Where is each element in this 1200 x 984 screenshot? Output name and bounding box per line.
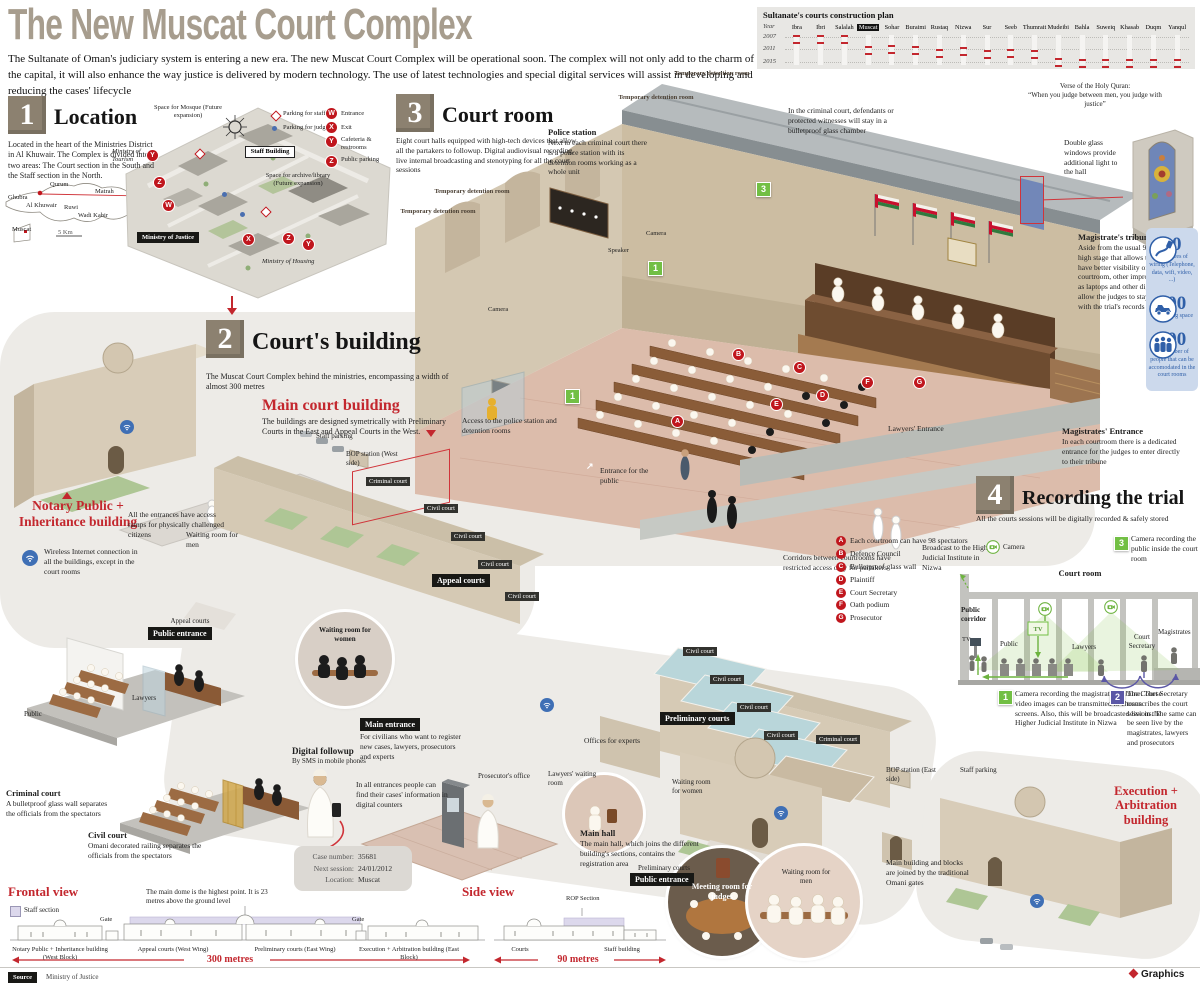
next-session-row: Next session:24/01/2012 bbox=[300, 863, 406, 875]
cable-icon bbox=[1148, 235, 1178, 265]
waiting-women-inset-label: Waiting room for women bbox=[312, 626, 378, 644]
temp-detention-3: Temporary detention room bbox=[432, 188, 512, 196]
timeline-city-label: Bahla bbox=[1070, 23, 1094, 33]
timeline-mark bbox=[984, 50, 991, 59]
timeline-city-label: Suweiq bbox=[1094, 23, 1118, 33]
timeline-track bbox=[1032, 35, 1037, 65]
timeline-city-label: Seeb bbox=[999, 23, 1023, 33]
case-info-box: Case number:35681 Next session:24/01/201… bbox=[294, 846, 412, 891]
temp-detention-4: Temporary detention room bbox=[398, 208, 478, 216]
wifi-badge-3 bbox=[774, 806, 788, 820]
courts-label: Courts bbox=[498, 946, 542, 954]
main-entrance-tag: Main entrance bbox=[360, 718, 420, 731]
prosecutors-office-label: Prosecutor's office bbox=[478, 772, 542, 781]
timeline-mark bbox=[817, 35, 824, 44]
wifi-badge-4 bbox=[1030, 894, 1044, 908]
stat-capacity: 800 the number of people that can be acc… bbox=[1148, 330, 1196, 380]
civil-court-tag-2: Civil court bbox=[451, 532, 485, 541]
map-marker-w1: W bbox=[163, 200, 174, 211]
wifi-badge-1 bbox=[120, 420, 134, 434]
map-marker-y1: Y bbox=[147, 150, 158, 161]
criminal-court-tag-west: Criminal court bbox=[366, 477, 410, 486]
section1-heading: Location bbox=[54, 106, 137, 128]
timeline-city-label: Sur bbox=[975, 23, 999, 33]
wifi-icon bbox=[22, 550, 38, 566]
courtroom-marker-d: D bbox=[817, 390, 828, 401]
next-session-key: Next session: bbox=[300, 863, 358, 875]
timeline-city-label: Thumrait bbox=[1023, 23, 1047, 33]
brand-name: Graphics bbox=[1141, 969, 1184, 980]
timeline-city-muscat: Muscat bbox=[856, 23, 880, 67]
lawyers-label: Lawyers bbox=[132, 694, 156, 703]
block-label-0: Notary Public + Inheritance building (We… bbox=[4, 946, 116, 963]
dimension-90m-label: 90 metres bbox=[548, 953, 608, 966]
timeline-track bbox=[961, 35, 966, 65]
timeline-city-label: Sohar bbox=[880, 23, 904, 33]
note2-text: The Court Secretary transcribes the cour… bbox=[1127, 689, 1197, 748]
chart-title: Sultanate's courts construction plan bbox=[763, 11, 1189, 20]
legend-marker-y: Y bbox=[326, 136, 337, 147]
civil-court-tag-e1: Civil court bbox=[683, 647, 717, 656]
key-letter-badge: C bbox=[836, 562, 846, 572]
appeal-courts-tag: Appeal courts bbox=[432, 574, 490, 587]
map-bluedot-1 bbox=[240, 212, 245, 217]
timeline-city-seeb: Seeb bbox=[999, 23, 1023, 67]
magistrates-entrance-body: In each courtroom there is a dedicated e… bbox=[1062, 437, 1182, 466]
main-hall-title: Main hall bbox=[580, 828, 615, 839]
broadcast-note: Broadcast to the Higher Judicial Institu… bbox=[922, 543, 994, 572]
staff-parking-west: Staff parking bbox=[316, 432, 353, 441]
map-archive-label: Space for archive/library (Future expans… bbox=[258, 172, 338, 189]
court-demo-scenes bbox=[15, 628, 315, 873]
timeline-city-suweiq: Suweiq bbox=[1094, 23, 1118, 67]
public-entrance-arrow-icon bbox=[586, 456, 594, 474]
timeline-mark bbox=[960, 47, 967, 56]
key-letter-badge: G bbox=[836, 613, 846, 623]
section1-number: 1 bbox=[8, 96, 46, 134]
double-glass-note2: Double glass windows provide additional … bbox=[1064, 138, 1126, 177]
key-letter-badge: B bbox=[836, 549, 846, 559]
main-entrance-body: For civilians who want to register new c… bbox=[360, 732, 468, 761]
courtroom-marker-b: B bbox=[733, 349, 744, 360]
section3-heading: Court room bbox=[442, 104, 553, 126]
map-ministry-housing: Ministry of Housing bbox=[262, 258, 320, 266]
magistrates-entrance-title: Magistrates' Entrance bbox=[1062, 426, 1192, 437]
callout-1-badge-b: 1 bbox=[565, 389, 580, 404]
sketch-city-ruwi: Ruwi bbox=[64, 204, 78, 212]
map-staff-building: Staff Building bbox=[245, 146, 295, 158]
note3-badge: 3 bbox=[1114, 536, 1129, 551]
timeline-track bbox=[985, 35, 990, 65]
timeline-city-label: Khasab bbox=[1118, 23, 1142, 33]
section3-number: 3 bbox=[396, 94, 434, 132]
section4-body: All the courts sessions will be digitall… bbox=[976, 514, 1198, 524]
notary-building-title: Notary Public + Inheritance building bbox=[14, 498, 142, 529]
section2-pointer-line bbox=[231, 296, 233, 308]
section2-number: 2 bbox=[206, 320, 244, 358]
sketch-scale: 5 Km bbox=[58, 229, 73, 237]
preliminary-courts-tag2: Preliminary courts bbox=[660, 712, 735, 725]
timeline-city-label: Buraimi bbox=[904, 23, 928, 33]
glass-chamber-note: In the criminal court, defendants or pro… bbox=[788, 106, 910, 135]
callout-1-badge-a: 1 bbox=[648, 261, 663, 276]
section4-court-room-label: Court room bbox=[1040, 568, 1120, 579]
timeline-mark bbox=[793, 35, 800, 44]
timeline-track bbox=[1080, 35, 1085, 65]
brand-logo: Graphics bbox=[1130, 969, 1184, 981]
timeline-city-label: Mudeibi bbox=[1046, 23, 1070, 33]
timeline-city-label: Duqm bbox=[1141, 23, 1165, 33]
year-tick-2007: 2007 bbox=[763, 33, 776, 40]
map-marker-y2: Y bbox=[303, 239, 314, 250]
legend-public-parking: Public parking bbox=[341, 156, 389, 164]
timeline-mark bbox=[936, 49, 943, 58]
timeline-mark bbox=[865, 46, 872, 55]
camera-icon-legend bbox=[986, 540, 1000, 554]
map-marker-x1: X bbox=[243, 234, 254, 245]
legend-parking-staff: Parking for staff bbox=[283, 110, 325, 118]
brand-diamond-icon bbox=[1129, 969, 1139, 979]
year-tick-2015: 2015 bbox=[763, 58, 776, 65]
staff-parking-east: Staff parking bbox=[960, 766, 997, 775]
digital-followup-sub: By SMS in mobile phones bbox=[292, 757, 366, 766]
timeline-mark bbox=[1174, 59, 1181, 68]
civil-court-tag-3: Civil court bbox=[478, 560, 512, 569]
timeline-city-label: Yanqul bbox=[1165, 23, 1189, 33]
courtroom-marker-e: E bbox=[771, 399, 782, 410]
location-value: Muscat bbox=[358, 874, 380, 886]
key-item-F: FOath podium bbox=[836, 600, 968, 609]
timeline-track bbox=[1127, 35, 1132, 65]
civil-demo-body: Omani decorated railing separates the of… bbox=[88, 841, 216, 861]
legend-marker-x: X bbox=[326, 122, 337, 133]
timeline-city-sohar: Sohar bbox=[880, 23, 904, 67]
block-label-3: Execution + Arbitration building (East B… bbox=[354, 946, 464, 963]
timeline-mark bbox=[1102, 59, 1109, 68]
timeline-mark bbox=[1007, 49, 1014, 58]
timeline-mark bbox=[841, 35, 848, 44]
criminal-demo-title: Criminal court bbox=[6, 788, 61, 799]
timeline-track bbox=[1151, 35, 1156, 65]
speaker-label: Speaker bbox=[608, 247, 629, 255]
courtroom-marker-g: G bbox=[914, 377, 925, 388]
public-corridor-label: Public corridor bbox=[961, 606, 1005, 624]
next-session-value: 24/01/2012 bbox=[358, 863, 392, 875]
wireless-note: Wireless Internet connection in all the … bbox=[44, 547, 144, 576]
source-tag: Source bbox=[8, 972, 37, 983]
courtroom-marker-a: A bbox=[672, 416, 683, 427]
frontal-elevation bbox=[10, 904, 485, 946]
main-court-title: Main court building bbox=[262, 396, 400, 417]
camera-legend-label: Camera bbox=[1003, 543, 1025, 552]
waiting-room-men-inset bbox=[748, 846, 860, 958]
sketch-city-alkhuwair: Al Khuwair bbox=[26, 202, 57, 210]
infographic-canvas: The New Muscat Court Complex The Sultana… bbox=[0, 0, 1200, 984]
timeline-city-salalah: Salalah bbox=[833, 23, 857, 67]
waiting-women-east-label: Waiting room for women bbox=[672, 778, 718, 796]
temp-detention-1: Temporary detention room bbox=[672, 70, 752, 78]
key-letter-badge: E bbox=[836, 588, 846, 598]
prelim-entrance-label: Preliminary courts bbox=[626, 864, 702, 873]
timeline-city-label: Salalah bbox=[833, 23, 857, 33]
key-item-E: ECourt Secretary bbox=[836, 588, 968, 597]
case-number-key: Case number: bbox=[300, 851, 358, 863]
stat-wiring: 80 kilometres of wiring (Telephone, data… bbox=[1148, 235, 1196, 285]
dimension-300m-label: 300 metres bbox=[190, 953, 270, 966]
key-item-D: DPlaintiff bbox=[836, 575, 968, 584]
map-marker-z2: Z bbox=[283, 233, 294, 244]
key-letter-badge: F bbox=[836, 600, 846, 610]
civil-demo-title: Civil court bbox=[88, 830, 127, 841]
staff-section-swatch bbox=[10, 906, 21, 917]
section2-body: The Muscat Court Complex behind the mini… bbox=[206, 372, 464, 393]
temp-detention-2: Temporary detention room bbox=[616, 94, 696, 102]
stained-glass-detail bbox=[1125, 108, 1200, 248]
map-ministry-justice: Ministry of Justice bbox=[137, 232, 199, 243]
legend-marker-z: Z bbox=[326, 156, 337, 167]
dome-note: The main dome is the highest point. It i… bbox=[146, 888, 274, 906]
map-staff-building-label: Staff Building bbox=[251, 148, 290, 155]
construction-plan-chart: Sultanate's courts construction plan Yea… bbox=[757, 7, 1195, 69]
appeal-public-entrance-tag: Public entrance bbox=[148, 627, 212, 640]
criminal-court-tag-east: Criminal court bbox=[816, 735, 860, 744]
civil-court-tag-e2: Civil court bbox=[710, 675, 744, 684]
note2-badge2: 2 bbox=[1110, 690, 1125, 705]
timeline-city-yanqul: Yanqul bbox=[1165, 23, 1189, 67]
tv-green-label: TV bbox=[1028, 626, 1048, 634]
meeting-room-label: Meeting room for judges bbox=[686, 882, 758, 903]
timeline-track bbox=[889, 35, 894, 65]
timeline-track bbox=[1103, 35, 1108, 65]
legend-entrance: Entrance bbox=[341, 110, 364, 118]
case-number-value: 35681 bbox=[358, 851, 377, 863]
camera-label-2: Camera bbox=[488, 306, 508, 314]
case-number-row: Case number:35681 bbox=[300, 851, 406, 863]
timeline-city-label: Rustaq bbox=[928, 23, 952, 33]
timeline-mark bbox=[1031, 50, 1038, 59]
timeline-city-nizwa: Nizwa bbox=[951, 23, 975, 67]
tribune-title: Magistrate's tribune bbox=[1078, 232, 1152, 243]
stat-parking: 400 car parking space bbox=[1148, 294, 1196, 321]
timeline-track bbox=[913, 35, 918, 65]
page-title: The New Muscat Court Complex bbox=[8, 2, 472, 48]
sketch-city-wadikabir: Wadi Kabir bbox=[78, 212, 110, 220]
staff-section-label: Staff section bbox=[24, 906, 59, 915]
offices-experts-label: Offices for experts bbox=[584, 736, 642, 746]
side-view-title: Side view bbox=[462, 884, 514, 901]
police-station-body: Next to each criminal court there is a p… bbox=[548, 138, 652, 177]
stats-panel: 80 kilometres of wiring (Telephone, data… bbox=[1146, 228, 1198, 391]
timeline-city-label: Muscat bbox=[856, 23, 880, 33]
timeline-city-label: Nizwa bbox=[951, 23, 975, 33]
year-axis-label: Year bbox=[763, 23, 775, 30]
timeline-mark bbox=[1079, 59, 1086, 68]
timeline-city-rustaq: Rustaq bbox=[928, 23, 952, 67]
window-callout-rect bbox=[1020, 176, 1044, 224]
execution-building-title: Execution + Arbitration building bbox=[1096, 784, 1196, 827]
criminal-demo-body: A bulletproof glass wall separates the o… bbox=[6, 799, 118, 819]
courtroom-marker-f: F bbox=[862, 377, 873, 388]
entrance-public-label: Entrance for the public bbox=[600, 466, 664, 486]
lawyers-waiting-label: Lawyers' waiting room bbox=[548, 770, 600, 788]
waiting-men-west: Waiting room for men bbox=[186, 530, 238, 550]
people-icon bbox=[1148, 330, 1178, 360]
lawyers-entrance-label: Lawyers' Entrance bbox=[888, 424, 978, 434]
counters-note: In all entrances people can find their c… bbox=[356, 780, 448, 809]
west-wing-buildings bbox=[0, 318, 545, 653]
waiting-men-east-label: Waiting room for men bbox=[778, 868, 834, 886]
timeline-track bbox=[1008, 35, 1013, 65]
timeline-city-bahla: Bahla bbox=[1070, 23, 1094, 67]
sketch-city-muscat: Muscat bbox=[12, 226, 31, 234]
main-court-body: The buildings are designed symetrically … bbox=[262, 417, 452, 438]
location-key: Location: bbox=[300, 874, 358, 886]
section2-heading: Court's building bbox=[252, 330, 421, 354]
public-label: Public bbox=[24, 710, 42, 719]
sketch-city-ghubra: Ghubra bbox=[8, 194, 28, 202]
car-icon bbox=[1148, 294, 1178, 324]
section2-pointer-arrow-icon bbox=[227, 308, 237, 320]
civil-court-tag-1: Civil court bbox=[424, 504, 458, 513]
section4-heading: Recording the trial bbox=[1022, 488, 1184, 508]
camera-label-1: Camera bbox=[646, 230, 666, 238]
timeline-city-thumrait: Thumrait bbox=[1023, 23, 1047, 67]
key-letter-badge: A bbox=[836, 536, 846, 546]
district-map bbox=[108, 96, 398, 306]
timeline-track bbox=[818, 35, 823, 65]
timeline-track bbox=[937, 35, 942, 65]
bop-west-label: BOP station (West side) bbox=[346, 450, 404, 468]
map-mosque-label: Space for Mosque (Future expansion) bbox=[146, 104, 230, 121]
timeline-city-duqm: Duqm bbox=[1141, 23, 1165, 67]
timeline-mark bbox=[1126, 59, 1133, 68]
sketch-city-qurum: Qurum bbox=[50, 181, 68, 189]
timeline-city-label: Ibra bbox=[785, 23, 809, 33]
timeline-columns: IbraIbriSalalahMuscatSoharBuraimiRustaqN… bbox=[785, 23, 1189, 67]
wifi-badge-2 bbox=[540, 698, 554, 712]
courtroom-marker-c: C bbox=[794, 362, 805, 373]
civil-court-tag-4: Civil court bbox=[505, 592, 539, 601]
digital-followup-title: Digital followup bbox=[292, 746, 354, 758]
timeline-city-ibri: Ibri bbox=[809, 23, 833, 67]
timeline-city-khasab: Khasab bbox=[1118, 23, 1142, 67]
key-item-G: GProsecutor bbox=[836, 613, 968, 622]
callout-3-badge: 3 bbox=[756, 182, 771, 197]
note1-badge: 1 bbox=[998, 690, 1013, 705]
timeline-city-label: Ibri bbox=[809, 23, 833, 33]
timeline-mark bbox=[888, 45, 895, 54]
timeline-track bbox=[794, 35, 799, 65]
dot-icon bbox=[272, 126, 277, 131]
intro-text: The Sultanate of Oman's judiciary system… bbox=[8, 52, 760, 100]
section4-number: 4 bbox=[976, 476, 1014, 514]
civil-court-tag-e4: Civil court bbox=[764, 731, 798, 740]
timeline-mark bbox=[1150, 59, 1157, 68]
legend-parking-judges: Parking for judges bbox=[283, 124, 331, 132]
location-row: Location:Muscat bbox=[300, 874, 406, 886]
sketch-city-matrah: Matrah bbox=[95, 188, 114, 196]
quran-verse-quote: “When you judge between men, you judge w… bbox=[1022, 91, 1168, 109]
appeal-courts-entrance-label: Appeal courts bbox=[158, 617, 222, 626]
timeline-city-buraimi: Buraimi bbox=[904, 23, 928, 67]
year-axis: Year 2007 2011 2015 bbox=[763, 23, 785, 67]
legend-cafeteria: Cafeteria & restrooms bbox=[341, 136, 389, 153]
access-police-note: Access to the police station and detenti… bbox=[462, 416, 558, 436]
timeline-track bbox=[842, 35, 847, 65]
civil-court-tag-e3: Civil court bbox=[737, 703, 771, 712]
gate-label-2: Gate bbox=[352, 916, 364, 924]
timeline-track bbox=[1056, 35, 1061, 65]
gate-label-1: Gate bbox=[100, 916, 112, 924]
year-tick-2011: 2011 bbox=[763, 45, 776, 52]
timeline-city-mudeibi: Mudeibi bbox=[1046, 23, 1070, 67]
source-value: Ministry of Justice bbox=[46, 973, 99, 982]
omani-gates-note: Main building and blocks are joined by t… bbox=[886, 858, 970, 887]
frontal-view-title: Frontal view bbox=[8, 884, 78, 901]
timeline-mark bbox=[912, 46, 919, 55]
timeline-city-sur: Sur bbox=[975, 23, 999, 67]
key-letter-badge: D bbox=[836, 575, 846, 585]
legend-exit: Exit bbox=[341, 124, 352, 132]
map-marker-z1: Z bbox=[154, 177, 165, 188]
lawyers-role-label: Lawyers bbox=[1072, 643, 1096, 652]
side-elevation bbox=[494, 904, 666, 946]
tv-left-label: TV bbox=[962, 636, 971, 644]
timeline-track bbox=[1175, 35, 1180, 65]
rop-section-label: ROP Section bbox=[566, 895, 600, 903]
magistrates-role-label: Magistrates bbox=[1158, 628, 1191, 637]
timeline-mark bbox=[1055, 58, 1062, 67]
map-bluedot-2 bbox=[222, 192, 227, 197]
legend-marker-w: W bbox=[326, 108, 337, 119]
timeline-city-ibra: Ibra bbox=[785, 23, 809, 67]
note3-text: Camera recording the public inside the c… bbox=[1131, 534, 1199, 563]
timeline-track bbox=[866, 35, 871, 65]
bop-east-label: BOP station (East side) bbox=[886, 766, 944, 784]
public-role-label: Public bbox=[1000, 640, 1018, 649]
prelim-public-entrance-tag: Public entrance bbox=[630, 873, 694, 886]
police-station-title: Police station bbox=[548, 127, 596, 138]
quran-verse-title: Verse of the Holy Quran: bbox=[1020, 82, 1170, 91]
footer-rule bbox=[0, 967, 1200, 968]
